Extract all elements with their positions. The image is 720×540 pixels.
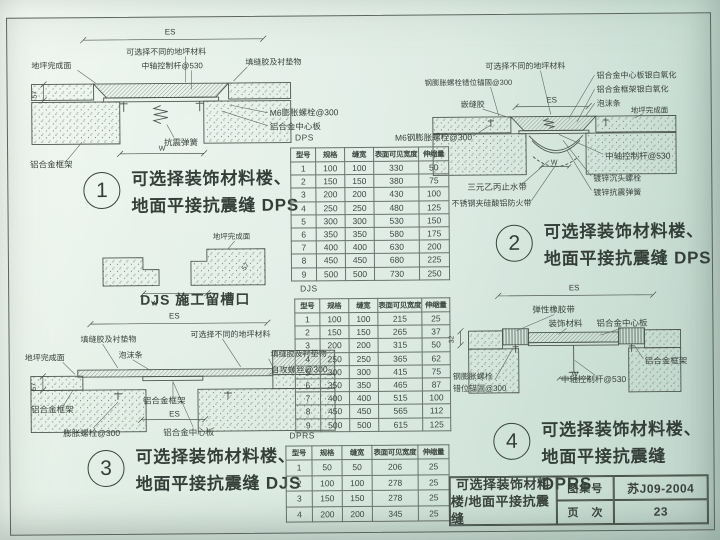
table-cell: 型号 bbox=[295, 299, 320, 313]
table-cell: 265 bbox=[378, 325, 422, 339]
table-row: 320020031550 bbox=[295, 338, 450, 352]
table-cell: 565 bbox=[379, 404, 423, 418]
table-cell: 450 bbox=[350, 405, 379, 418]
es-dim-label: ES bbox=[569, 283, 580, 292]
caption-2-line1: 可选择装饰材料楼、 bbox=[544, 217, 712, 245]
optional-material-label: 可选择不同的地坪材料 bbox=[126, 46, 206, 57]
caption-1: 1 可选择装饰材料楼、 地面平接抗震缝 DPS bbox=[83, 164, 299, 220]
table-cell: 680 bbox=[374, 253, 419, 267]
anchor-line1-label: 钢膨胀螺栓 bbox=[453, 371, 493, 381]
table-cell: 150 bbox=[419, 214, 449, 227]
djs-body: 1100100215252150150265373200200315504250… bbox=[295, 312, 451, 432]
table-row: 530030041575 bbox=[295, 365, 450, 379]
table-cell: 62 bbox=[422, 351, 450, 364]
table-row: 9500500730250 bbox=[291, 266, 449, 280]
table-cell: 表面可见宽度 bbox=[372, 445, 418, 459]
table-cell: 450 bbox=[316, 254, 345, 267]
table-cell: 450 bbox=[321, 405, 350, 418]
table-cell: 250 bbox=[345, 201, 374, 214]
table-cell: 表面可见宽度 bbox=[378, 298, 422, 312]
table-cell: 75 bbox=[419, 174, 449, 187]
detail-4-drawing: ES 弹性橡胶带 装饰材料 铝合金中心板 铝合金框架 中轴控制杆@530 钢膨胀… bbox=[438, 279, 717, 421]
table-cell: 250 bbox=[419, 266, 449, 279]
floor-finish-label: 地坪完成面 bbox=[31, 60, 71, 70]
table-cell: 100 bbox=[342, 475, 372, 491]
table-cell: 100 bbox=[422, 391, 450, 404]
table-cell: 150 bbox=[345, 175, 374, 188]
table-cell: 规格 bbox=[316, 148, 345, 162]
sunk-bolt-label: 镀锌沉头螺栓 bbox=[593, 173, 641, 183]
table-cell: 伸缩量 bbox=[418, 445, 449, 459]
table-row: 110010021525 bbox=[295, 312, 450, 326]
caption-1-line2: 地面平接抗震缝 DPS bbox=[131, 191, 299, 219]
table-cell: 365 bbox=[378, 352, 422, 366]
foam-label: 泡沫条 bbox=[597, 98, 621, 108]
floor-finish-label: 地坪完成面 bbox=[25, 352, 65, 362]
table-cell: 480 bbox=[374, 201, 419, 215]
scanned-atlas-page: ES 地坪完成面 可选择不同的地坪材料 中轴控制杆@530 填缝胶及衬垫物 M6… bbox=[0, 0, 720, 540]
table-cell: 400 bbox=[316, 241, 345, 254]
table-cell: 380 bbox=[374, 174, 419, 188]
table-cell: 278 bbox=[372, 475, 418, 491]
w-dim-label: W bbox=[551, 159, 558, 166]
table-row: 6350350580175 bbox=[291, 227, 449, 241]
es-dim-label: ES bbox=[165, 27, 176, 36]
table-cell: 1 bbox=[295, 313, 320, 326]
table-cell: 350 bbox=[345, 227, 374, 240]
table-cell: 3 bbox=[291, 188, 316, 201]
table-cell: 150 bbox=[349, 326, 378, 339]
caption-3-text: 可选择装饰材料楼、 地面平接抗震缝 DJS bbox=[135, 442, 301, 497]
table-row: 8450450680225 bbox=[291, 253, 449, 267]
table-row: 1505020625 bbox=[286, 459, 449, 476]
optional-material-label: 可选择不同的地坪材料 bbox=[485, 60, 565, 71]
control-rod-label: 中轴控制杆@530 bbox=[605, 151, 671, 162]
table-cell: 4 bbox=[291, 201, 316, 214]
table-cell: 8 bbox=[291, 254, 316, 267]
table-cell: 225 bbox=[419, 253, 449, 266]
optional-material-label: 可选择不同的地坪材料 bbox=[190, 329, 270, 340]
table-cell: 615 bbox=[379, 418, 423, 432]
table-cell: 530 bbox=[374, 214, 419, 228]
table-row: 315015027825 bbox=[286, 490, 449, 507]
table-cell: 400 bbox=[320, 392, 349, 405]
es-dimension-line bbox=[80, 36, 266, 43]
table-cell: 87 bbox=[422, 378, 450, 391]
table-cell: 伸缩量 bbox=[419, 147, 449, 161]
frame-ox-label: 铝合金框架银白氧化 bbox=[597, 84, 669, 95]
table-cell: 500 bbox=[316, 267, 345, 280]
table-row: 5300300530150 bbox=[291, 214, 449, 228]
center-plate-label: 铝合金中心板 bbox=[270, 121, 322, 131]
table-cell: 2 bbox=[286, 475, 312, 491]
frame-label: 铝合金框架 bbox=[30, 159, 73, 169]
table-cell: 4 bbox=[286, 507, 312, 523]
page-no-value: 23 bbox=[614, 499, 708, 524]
table-cell: 112 bbox=[423, 404, 451, 417]
table-cell: 2 bbox=[295, 326, 320, 339]
waterstop-label: 三元乙丙止水带 bbox=[467, 182, 527, 192]
caption-3-line1: 可选择装饰材料楼、 bbox=[135, 442, 301, 470]
atlas-no-value: 苏J09-2004 bbox=[614, 475, 708, 500]
table-cell: 315 bbox=[378, 338, 422, 352]
sealant-label: 填缝胶及衬垫物 bbox=[245, 56, 301, 66]
table-row: 3200200430100 bbox=[291, 187, 449, 201]
dps-body: 1100100330502150150380753200200430100425… bbox=[291, 161, 450, 281]
table-row: 420020034525 bbox=[286, 506, 449, 523]
table-cell: 型号 bbox=[291, 148, 316, 162]
table-cell: 730 bbox=[374, 267, 419, 281]
table-cell: 350 bbox=[349, 378, 378, 391]
caption-3: 3 可选择装饰材料楼、 地面平接抗震缝 DJS bbox=[87, 442, 301, 498]
dprs-body: 1505020625210010027825315015027825420020… bbox=[286, 459, 449, 523]
table-cell: 206 bbox=[372, 459, 418, 475]
table-cell: 125 bbox=[419, 200, 449, 213]
table-cell: 350 bbox=[316, 228, 345, 241]
detail-4-number: 4 bbox=[493, 423, 530, 460]
detail-3-number: 3 bbox=[87, 450, 124, 487]
dps-table: 型号规格缝宽表面可见宽度伸缩量 110010033050215015038075… bbox=[290, 146, 450, 281]
caption-2-text: 可选择装饰材料楼、 地面平接抗震缝 DPS bbox=[544, 217, 712, 272]
control-rod-label: 中轴控制杆@530 bbox=[141, 60, 203, 70]
caption-2-line2: 地面平接抗震缝 DPS bbox=[544, 244, 712, 272]
frame-mid-label: 铝合金框架 bbox=[143, 395, 186, 405]
table-cell: 25 bbox=[418, 490, 449, 506]
table-cell: 型号 bbox=[286, 446, 312, 460]
table-cell: 50 bbox=[312, 460, 342, 476]
table-cell: 300 bbox=[349, 365, 378, 378]
table-cell: 300 bbox=[316, 214, 345, 227]
sheet-title: 可选择装饰材料 楼/地面平接抗震缝 bbox=[450, 476, 557, 525]
dps-header-row: 型号规格缝宽表面可见宽度伸缩量 bbox=[291, 147, 449, 162]
caption-1-text: 可选择装饰材料楼、 地面平接抗震缝 DPS bbox=[131, 164, 299, 219]
caption-4-line1: 可选择装饰材料楼、 bbox=[541, 415, 720, 443]
es-dimension-line bbox=[495, 292, 656, 299]
table-row: 9500500615125 bbox=[296, 417, 451, 431]
table-cell: 630 bbox=[374, 240, 419, 254]
table-cell: 6 bbox=[295, 379, 320, 392]
djs-table-name: DJS bbox=[300, 283, 318, 293]
table-cell: 7 bbox=[295, 392, 320, 405]
table-cell: 465 bbox=[378, 378, 422, 392]
table-row: 215015026537 bbox=[295, 325, 450, 339]
table-cell: 100 bbox=[316, 162, 345, 175]
table-cell: 100 bbox=[312, 475, 342, 491]
table-cell: 2 bbox=[291, 175, 316, 188]
table-cell: 330 bbox=[374, 161, 419, 175]
table-cell: 430 bbox=[374, 187, 419, 201]
table-cell: 50 bbox=[419, 161, 449, 174]
table-cell: 50 bbox=[342, 459, 372, 475]
dprs-table: 型号规格缝宽表面可见宽度伸缩量 150502062521001002782531… bbox=[285, 444, 450, 523]
table-cell: 25 bbox=[418, 506, 449, 522]
djs-table: 型号规格缝宽表面可见宽度伸缩量 110010021525215015026537… bbox=[294, 297, 451, 432]
dim-57-label: 57 bbox=[31, 383, 38, 391]
rubber-label: 弹性橡胶带 bbox=[532, 304, 575, 314]
frame-left-label: 铝合金框架 bbox=[31, 404, 74, 414]
table-row: 635035046587 bbox=[295, 378, 450, 392]
anchor-line2-label: 错位锚固@300 bbox=[453, 383, 507, 393]
table-cell: 200 bbox=[419, 240, 449, 253]
table-cell: 125 bbox=[423, 417, 451, 430]
table-cell: 400 bbox=[345, 241, 374, 254]
table-cell: 200 bbox=[316, 188, 345, 201]
fire-band-label: 不锈钢夹硅酸铝防火带 bbox=[451, 198, 531, 209]
w-dim-label: W bbox=[571, 371, 578, 378]
table-cell: 5 bbox=[291, 215, 316, 228]
table-cell: 缝宽 bbox=[342, 445, 372, 459]
table-row: 215015038075 bbox=[291, 174, 449, 188]
table-cell: 3 bbox=[295, 339, 320, 352]
table-cell: 100 bbox=[349, 312, 378, 325]
w-dim-label: W bbox=[159, 146, 166, 153]
table-cell: 25 bbox=[418, 459, 449, 475]
table-cell: 缝宽 bbox=[349, 298, 378, 312]
table-cell: 278 bbox=[372, 490, 418, 506]
table-cell: 5 bbox=[295, 366, 320, 379]
es-inner-label: ES bbox=[169, 409, 180, 418]
table-row: 425025036562 bbox=[295, 351, 450, 365]
table-cell: 8 bbox=[296, 405, 321, 418]
sheet-title-line1: 可选择装饰材料 bbox=[456, 475, 551, 493]
table-cell: 1 bbox=[291, 162, 316, 175]
title-block: 可选择装饰材料 楼/地面平接抗震缝 图集号 苏J09-2004 页 次 23 bbox=[449, 474, 709, 526]
table-cell: 规格 bbox=[320, 299, 349, 313]
es-dimension-line bbox=[87, 320, 270, 327]
table-cell: 450 bbox=[345, 254, 374, 267]
table-cell: 150 bbox=[342, 491, 372, 507]
table-cell: 6 bbox=[291, 228, 316, 241]
page-no-label: 页 次 bbox=[557, 500, 614, 524]
table-cell: 150 bbox=[316, 175, 345, 188]
table-cell: 1 bbox=[286, 460, 312, 476]
spring-label: 镀锌抗震弹簧 bbox=[593, 187, 641, 197]
dprs-header-row: 型号规格缝宽表面可见宽度伸缩量 bbox=[286, 445, 449, 460]
dim-57-label: 57 bbox=[32, 91, 39, 99]
table-row: 210010027825 bbox=[286, 474, 449, 491]
table-cell: 规格 bbox=[312, 446, 342, 460]
bolt-label: 膨胀螺栓@300 bbox=[63, 428, 120, 438]
djs-header-row: 型号规格缝宽表面可见宽度伸缩量 bbox=[295, 298, 450, 313]
table-cell: 表面可见宽度 bbox=[374, 147, 419, 161]
table-cell: 215 bbox=[378, 312, 422, 326]
table-cell: 缝宽 bbox=[345, 147, 374, 161]
table-cell: 200 bbox=[320, 339, 349, 352]
foam-label: 泡沫条 bbox=[119, 350, 143, 360]
table-cell: 200 bbox=[312, 506, 342, 522]
table-cell: 100 bbox=[345, 161, 374, 174]
atlas-no-label: 图集号 bbox=[557, 476, 614, 500]
table-cell: 3 bbox=[286, 491, 312, 507]
table-cell: 500 bbox=[321, 418, 350, 431]
table-cell: 37 bbox=[422, 325, 450, 338]
table-row: 110010033050 bbox=[291, 161, 449, 175]
m6-bolt-label: M6膨胀螺栓@300 bbox=[270, 107, 339, 118]
caulk-label: 嵌缝胶 bbox=[461, 99, 485, 109]
table-cell: 300 bbox=[320, 365, 349, 378]
table-cell: 515 bbox=[378, 391, 422, 405]
table-cell: 200 bbox=[345, 188, 374, 201]
sheet-content: ES 地坪完成面 可选择不同的地坪材料 中轴控制杆@530 填缝胶及衬垫物 M6… bbox=[0, 0, 720, 540]
caption-2: 2 可选择装饰材料楼、 地面平接抗震缝 DPS bbox=[496, 217, 712, 273]
deco-label: 装饰材料 bbox=[548, 318, 583, 328]
groove-leader bbox=[228, 241, 235, 249]
table-row: 7400400630200 bbox=[291, 240, 449, 254]
table-cell: 100 bbox=[419, 187, 449, 200]
table-cell: 4 bbox=[295, 352, 320, 365]
table-cell: 400 bbox=[349, 392, 378, 405]
joint-section bbox=[31, 350, 336, 432]
table-cell: 150 bbox=[320, 326, 349, 339]
groove-right-block bbox=[191, 249, 265, 286]
floor-finish-label: 地坪完成面 bbox=[631, 105, 669, 115]
table-cell: 250 bbox=[320, 352, 349, 365]
table-cell: 345 bbox=[372, 506, 418, 522]
table-cell: 300 bbox=[345, 214, 374, 227]
spring-label: 抗震弹簧 bbox=[164, 137, 199, 147]
groove-floor-finish-label: 地坪完成面 bbox=[213, 231, 251, 241]
caption-3-line2: 地面平接抗震缝 DJS bbox=[136, 469, 302, 497]
table-cell: 25 bbox=[422, 312, 450, 325]
table-cell: 500 bbox=[350, 418, 379, 431]
table-row: 4250250480125 bbox=[291, 200, 449, 214]
table-row: 7400400515100 bbox=[295, 391, 450, 405]
table-cell: 250 bbox=[316, 201, 345, 214]
table-cell: 50 bbox=[422, 338, 450, 351]
table-cell: 伸缩量 bbox=[422, 298, 450, 312]
frame-label: 铝合金框架 bbox=[645, 355, 688, 365]
table-cell: 580 bbox=[374, 227, 419, 241]
table-cell: 175 bbox=[419, 227, 449, 240]
table-cell: 100 bbox=[320, 313, 349, 326]
table-cell: 150 bbox=[312, 491, 342, 507]
dps-table-name: DPS bbox=[295, 132, 314, 142]
groove-left-block bbox=[103, 258, 159, 286]
detail-2-number: 2 bbox=[496, 225, 533, 262]
caption-1-line1: 可选择装饰材料楼、 bbox=[131, 164, 299, 192]
sealant-left-label: 填缝胶及衬垫物 bbox=[80, 334, 136, 344]
table-cell: 200 bbox=[342, 506, 372, 522]
center-plate-ox-label: 铝合金中心板银白氧化 bbox=[596, 70, 676, 81]
anchor-bolt-label: 钢膨胀螺栓错位锚固@300 bbox=[424, 77, 512, 88]
m6-bolt-label: M6钢膨胀螺栓@300 bbox=[395, 132, 472, 143]
detail-1-number: 1 bbox=[83, 172, 120, 209]
es-top-label: ES bbox=[169, 311, 180, 320]
table-cell: 250 bbox=[349, 352, 378, 365]
center-plate-label: 铝合金中心板 bbox=[163, 427, 215, 437]
table-cell: 7 bbox=[291, 241, 316, 254]
table-cell: 9 bbox=[291, 267, 316, 280]
center-plate-label: 铝合金中心板 bbox=[596, 318, 648, 328]
table-cell: 500 bbox=[345, 267, 374, 280]
sheet-title-line2: 楼/地面平接抗震缝 bbox=[451, 492, 556, 527]
table-row: 8450450565112 bbox=[296, 404, 451, 418]
table-cell: 415 bbox=[378, 365, 422, 379]
table-cell: 200 bbox=[349, 339, 378, 352]
table-cell: 25 bbox=[418, 474, 449, 490]
dprs-table-name: DPRS bbox=[289, 430, 315, 440]
table-cell: 350 bbox=[320, 379, 349, 392]
table-cell: 75 bbox=[422, 365, 450, 378]
